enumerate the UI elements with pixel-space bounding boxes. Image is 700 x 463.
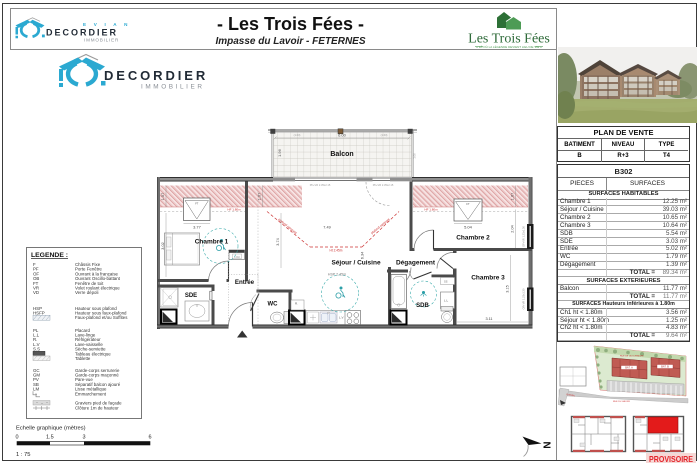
svg-text:0: 0 [16, 435, 19, 441]
svg-text:Ht 2.45m: Ht 2.45m [330, 249, 343, 253]
svg-text:HF 1.80m: HF 1.80m [424, 208, 438, 212]
svg-text:R.: R. [295, 302, 298, 306]
svg-text:Emmarchement: Emmarchement [75, 391, 107, 396]
svg-text:HSFP: HSFP [33, 311, 45, 316]
svg-text:3.77: 3.77 [193, 225, 202, 230]
svg-text:PF+VR 2.35x2.15: PF+VR 2.35x2.15 [310, 183, 331, 187]
svg-text:E V I A N: E V I A N [83, 22, 131, 27]
svg-text:IMMOBILIER: IMMOBILIER [84, 38, 119, 43]
svg-text:Chambre 3: Chambre 3 [471, 275, 505, 282]
svg-text:DECORDIER: DECORDIER [104, 68, 208, 83]
svg-text:3.02: 3.02 [161, 242, 165, 249]
svg-text:SS: SS [444, 280, 448, 284]
svg-text:BAT. A: BAT. A [625, 366, 633, 370]
svg-text:Dégagement: Dégagement [396, 260, 436, 267]
svg-text:FT: FT [466, 202, 470, 206]
svg-text:L.V: L.V [339, 316, 344, 320]
svg-text:RUE DU LAVOIR: RUE DU LAVOIR [613, 400, 630, 403]
svg-text:Entrée: Entrée [235, 279, 255, 286]
svg-text:(1.63): (1.63) [294, 133, 301, 137]
svg-text:IMMOBILIER: IMMOBILIER [141, 84, 205, 91]
svg-text:1.07: 1.07 [258, 193, 262, 200]
svg-text:S.S: S.S [33, 347, 40, 352]
svg-text:2.04: 2.04 [511, 225, 515, 232]
svg-text:Echelle graphique (mètres): Echelle graphique (mètres) [16, 426, 86, 432]
svg-text:1.07: 1.07 [161, 193, 165, 200]
svg-text:WC: WC [268, 302, 279, 308]
svg-text:SDE: SDE [185, 293, 197, 299]
svg-text:LEGENDE :: LEGENDE : [31, 252, 68, 259]
svg-text:HF 1.80m: HF 1.80m [227, 208, 241, 212]
svg-text:HSP 2.45m: HSP 2.45m [328, 273, 346, 277]
svg-text:1.06: 1.06 [413, 153, 417, 159]
svg-text:1 : 75: 1 : 75 [16, 452, 31, 458]
svg-text:3.74: 3.74 [276, 238, 280, 245]
svg-text:L.L: L.L [444, 299, 449, 303]
svg-text:3.15: 3.15 [506, 285, 510, 292]
svg-text:Verre dépoli: Verre dépoli [75, 290, 98, 295]
svg-text:L'OU: L'OU [234, 256, 240, 259]
svg-text:(1.63): (1.63) [381, 133, 388, 137]
svg-text:plafond rampant: plafond rampant [277, 217, 298, 235]
svg-text:N: N [541, 442, 552, 449]
svg-text:PROVISOIRE: PROVISOIRE [649, 454, 693, 463]
svg-text:BAT. B: BAT. B [661, 365, 669, 369]
svg-text:RUE DE LA CORNICHE: RUE DE LA CORNICHE [620, 354, 644, 357]
svg-text:« LÀ OÙ LA LÉGENDE DEVIENT LIE: « LÀ OÙ LA LÉGENDE DEVIENT LIEU DE VIE » [476, 44, 542, 49]
svg-text:Faux-plafond et/ou Soffites: Faux-plafond et/ou Soffites [75, 315, 128, 320]
svg-text:1.5: 1.5 [46, 435, 54, 441]
svg-text:5.04: 5.04 [464, 225, 473, 230]
svg-text:CHEMIN: CHEMIN [566, 394, 575, 398]
svg-text:Chambre 1: Chambre 1 [195, 239, 229, 246]
svg-text:3: 3 [83, 435, 86, 441]
svg-text:OF+VR 1.23x1.30: OF+VR 1.23x1.30 [522, 226, 526, 247]
svg-text:Chambre 2: Chambre 2 [456, 235, 490, 242]
svg-text:1.07: 1.07 [511, 193, 515, 200]
svg-text:3.11: 3.11 [485, 317, 492, 321]
svg-text:DECORDIER: DECORDIER [46, 28, 118, 38]
svg-text:1.96: 1.96 [277, 148, 282, 157]
svg-text:7.49: 7.49 [323, 226, 330, 230]
svg-text:Tablette: Tablette [75, 356, 91, 361]
svg-text:SDB: SDB [416, 303, 429, 309]
svg-text:Clôture 1m de hauteur: Clôture 1m de hauteur [75, 406, 119, 411]
svg-text:LM: LM [33, 387, 39, 392]
svg-text:6.34: 6.34 [361, 252, 365, 259]
svg-text:Séjour / Cuisine: Séjour / Cuisine [331, 260, 381, 267]
svg-text:FT: FT [195, 202, 199, 206]
svg-text:Balcon: Balcon [330, 151, 353, 158]
svg-text:VD: VD [33, 290, 39, 295]
svg-text:plafond rampant: plafond rampant [370, 217, 391, 235]
svg-text:PF+VR 2.35x2.15: PF+VR 2.35x2.15 [373, 183, 394, 187]
svg-text:6.00: 6.00 [338, 133, 347, 138]
svg-text:OF+VR 1.23x1.30: OF+VR 1.23x1.30 [522, 288, 526, 309]
